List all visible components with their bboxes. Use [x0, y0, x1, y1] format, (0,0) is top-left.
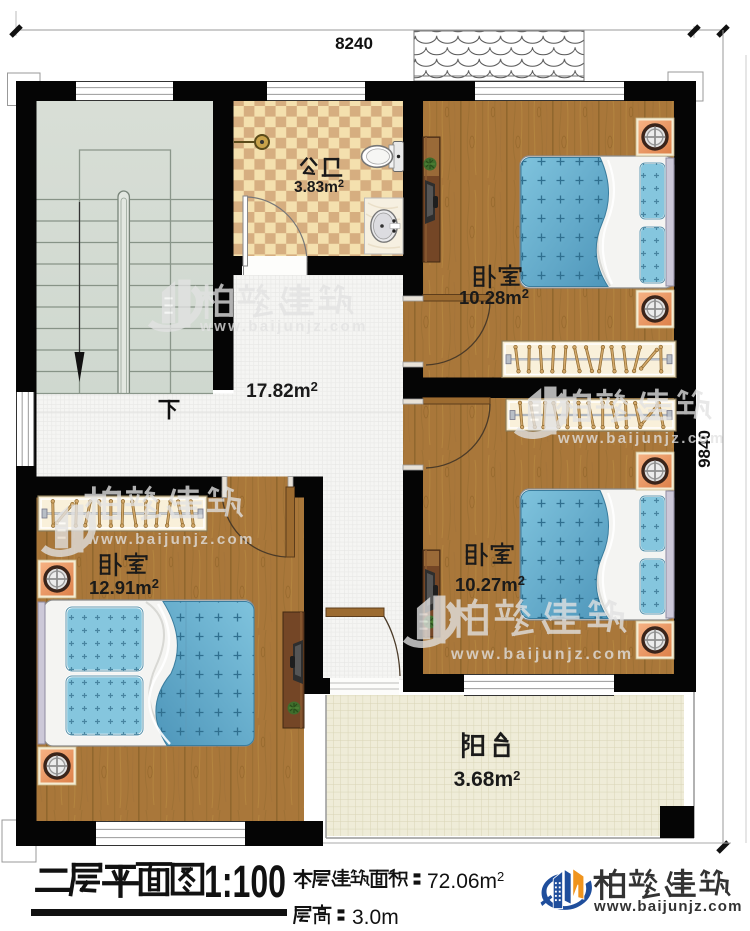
svg-text:10.27m2: 10.27m2 [455, 573, 525, 595]
svg-text:3.68m2: 3.68m2 [454, 768, 521, 791]
svg-text:17.82m2: 17.82m2 [246, 379, 318, 402]
svg-text:72.06m2: 72.06m2 [427, 869, 504, 893]
svg-text:www.baijunjz.com: www.baijunjz.com [199, 318, 368, 335]
svg-text:www.baijunjz.com: www.baijunjz.com [557, 430, 726, 447]
svg-text:10.28m2: 10.28m2 [459, 286, 529, 308]
svg-text:www.baijunjz.com: www.baijunjz.com [86, 531, 255, 548]
svg-text:www.baijunjz.com: www.baijunjz.com [593, 898, 743, 915]
svg-text:3.0m: 3.0m [352, 906, 399, 929]
svg-text:www.baijunjz.com: www.baijunjz.com [450, 646, 634, 663]
svg-text:8240: 8240 [335, 34, 373, 53]
svg-text:12.91m2: 12.91m2 [89, 576, 159, 598]
svg-text:3.83m2: 3.83m2 [294, 178, 344, 196]
svg-text:1:100: 1:100 [204, 856, 286, 907]
